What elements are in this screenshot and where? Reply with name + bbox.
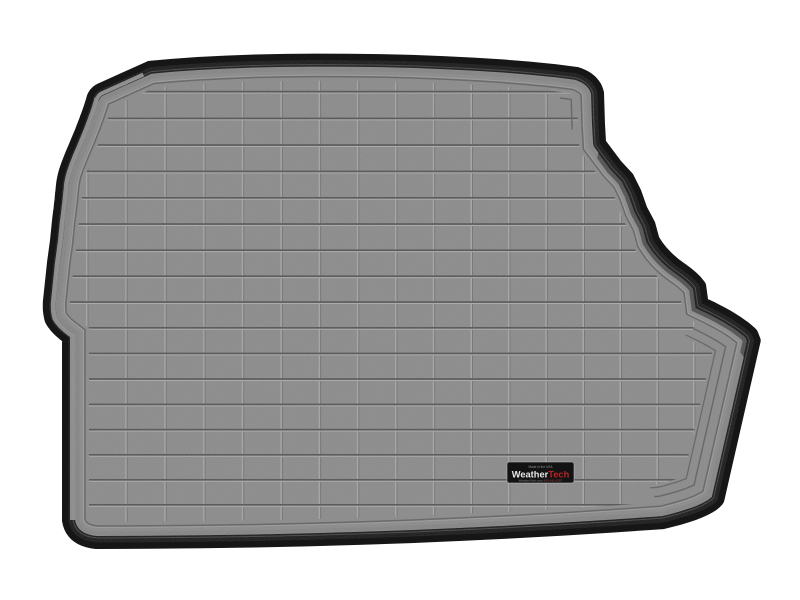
svg-text:Made in the USA: Made in the USA <box>528 465 553 469</box>
svg-text:WeatherTech.com 800-441-6287: WeatherTech.com 800-441-6287 <box>519 479 563 483</box>
